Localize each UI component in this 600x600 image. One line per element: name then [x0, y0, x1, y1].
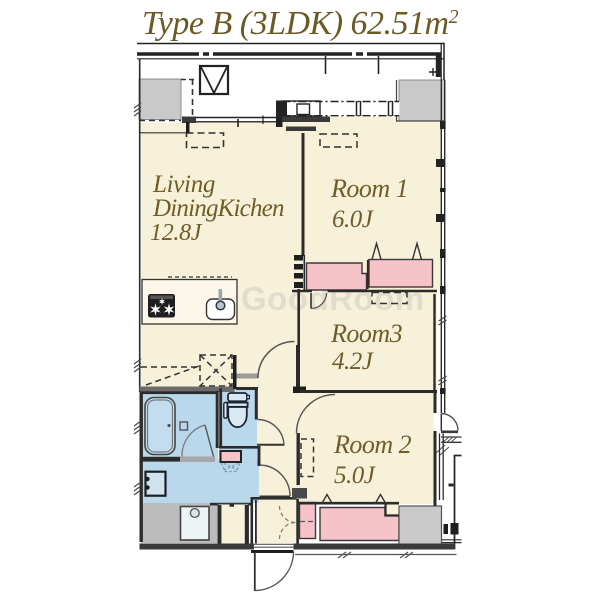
svg-text:Type B (3LDK) 62.51m2: Type B (3LDK) 62.51m2: [142, 5, 459, 42]
svg-text:DiningKichen: DiningKichen: [152, 195, 284, 222]
svg-text:Room3: Room3: [330, 319, 403, 348]
svg-text:Room 2: Room 2: [333, 430, 412, 459]
svg-text:12.8J: 12.8J: [150, 220, 203, 246]
svg-text:6.0J: 6.0J: [332, 206, 375, 233]
svg-text:5.0J: 5.0J: [334, 462, 377, 489]
svg-text:Room 1: Room 1: [330, 174, 408, 203]
svg-text:Living: Living: [152, 171, 215, 198]
svg-text:4.2J: 4.2J: [332, 348, 375, 375]
